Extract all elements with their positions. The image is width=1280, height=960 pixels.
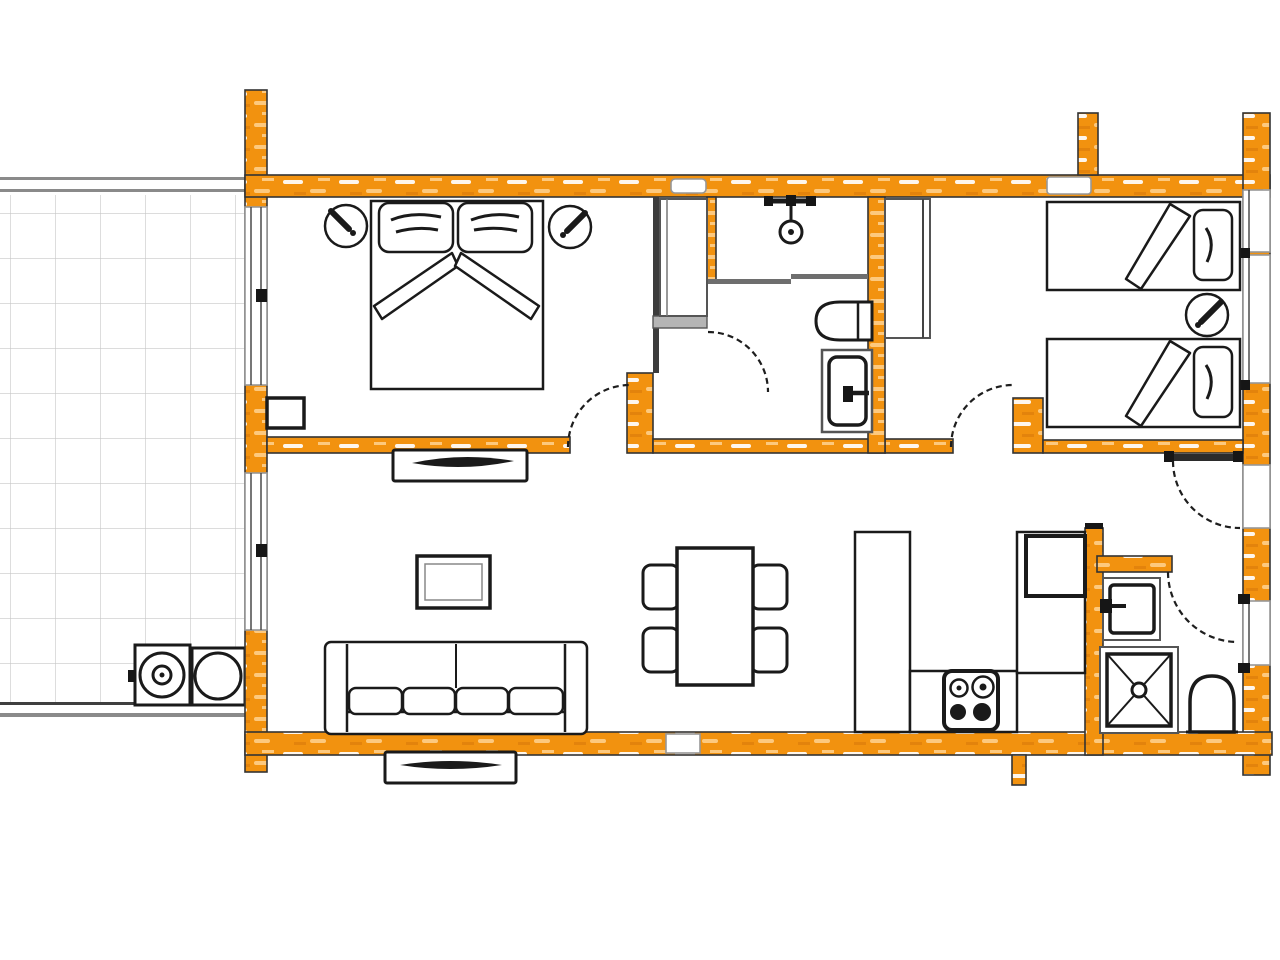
hall-wardrobe xyxy=(660,199,707,316)
sofa xyxy=(325,642,587,734)
floor-plan xyxy=(0,0,1280,960)
living-room-furniture xyxy=(325,450,587,783)
door-arc-hallway xyxy=(568,385,630,447)
window-top-wall-hall xyxy=(671,179,706,193)
single-bed-bottom xyxy=(1047,339,1240,427)
window-right-shower-room xyxy=(1238,594,1270,673)
bedroom2-wardrobe xyxy=(885,199,930,338)
terrace-border-top-inner xyxy=(0,189,245,192)
stove-4-burner xyxy=(944,671,998,730)
wall-stub-below-bottom xyxy=(1012,755,1026,785)
pillow-bottom xyxy=(1194,347,1232,417)
partition-bedroom1-right xyxy=(653,197,659,373)
shower-head xyxy=(764,195,816,243)
shower-room-fixtures xyxy=(1100,578,1238,733)
bathroom-fixtures xyxy=(764,195,872,432)
coffee-table xyxy=(417,556,490,608)
fridge xyxy=(1026,536,1085,596)
window-entry xyxy=(1243,465,1270,528)
grill-unit-single-ring xyxy=(192,648,245,705)
interior-wall-bedroom2-bottom-left xyxy=(885,439,953,453)
shower-room-toilet xyxy=(1186,676,1238,732)
double-bed xyxy=(371,201,543,389)
terrace-border-top-outer xyxy=(0,177,245,180)
dining-chair xyxy=(751,628,787,672)
floor-plan-canvas xyxy=(0,0,1280,960)
kitchen-furniture xyxy=(855,532,1085,732)
outer-wall-top xyxy=(245,175,1270,197)
entry-door xyxy=(1164,451,1243,528)
bedside-lamp-right xyxy=(549,206,591,248)
radiator xyxy=(267,398,304,428)
interior-wall-bathroom-left xyxy=(707,197,716,283)
door-pillar-hall xyxy=(627,373,653,453)
terrace-border-bottom-outer xyxy=(0,713,245,717)
shower-screen-right xyxy=(791,274,868,279)
chimney-stub xyxy=(1078,113,1098,175)
tv-sideboard-upper xyxy=(393,450,527,481)
interior-wall-shower-room-top xyxy=(1097,556,1172,572)
terrace-tile-grid xyxy=(0,195,245,703)
bedside-lamp-middle xyxy=(1186,294,1228,336)
window-living-terrace xyxy=(245,473,267,630)
bathroom-toilet xyxy=(816,302,872,340)
bathroom-washbasin xyxy=(822,350,872,432)
sofa-cushion xyxy=(403,688,455,714)
door-arc-bedroom2 xyxy=(951,385,1013,447)
dining-chair xyxy=(643,628,679,672)
hallway-furniture xyxy=(660,199,707,316)
counter-left-arm xyxy=(855,532,910,732)
shower-room-washbasin xyxy=(1100,578,1160,640)
dining-furniture xyxy=(643,548,787,685)
sofa-cushion xyxy=(456,688,508,714)
interior-wall-hall-bottom xyxy=(653,439,885,453)
single-bed-top xyxy=(1047,202,1240,290)
shower-screen-left xyxy=(707,279,791,284)
door-arc-entry xyxy=(1173,461,1240,528)
sofa-cushion xyxy=(349,688,402,714)
window-bedroom1-terrace xyxy=(245,207,267,385)
bedroom-1-furniture xyxy=(267,201,591,428)
window-right-bedroom2 xyxy=(1238,248,1270,390)
sofa-cushion xyxy=(509,688,563,714)
partition-hall-stub xyxy=(653,316,707,328)
door-arc-bathroom xyxy=(708,332,768,392)
dining-chair xyxy=(751,565,787,609)
window-bottom-wall xyxy=(666,734,700,753)
interior-wall-bedroom2-bottom-right xyxy=(1043,440,1243,453)
window-right-upper xyxy=(1243,190,1270,252)
bedroom-2-furniture xyxy=(885,199,1240,427)
terrace xyxy=(0,177,245,717)
window-top-wall-bedroom2 xyxy=(1047,177,1091,194)
pillow-top xyxy=(1194,210,1232,280)
grill-unit-double-ring xyxy=(128,645,190,705)
wall-cap xyxy=(1085,523,1103,529)
dining-chair xyxy=(643,565,679,609)
door-arc-shower-room xyxy=(1168,572,1238,642)
door-pillar-bedroom2 xyxy=(1013,398,1043,453)
bedside-lamp-left xyxy=(325,205,367,247)
tv-sideboard-lower xyxy=(385,752,516,783)
shower-tray xyxy=(1100,647,1178,733)
dining-table xyxy=(677,548,753,685)
